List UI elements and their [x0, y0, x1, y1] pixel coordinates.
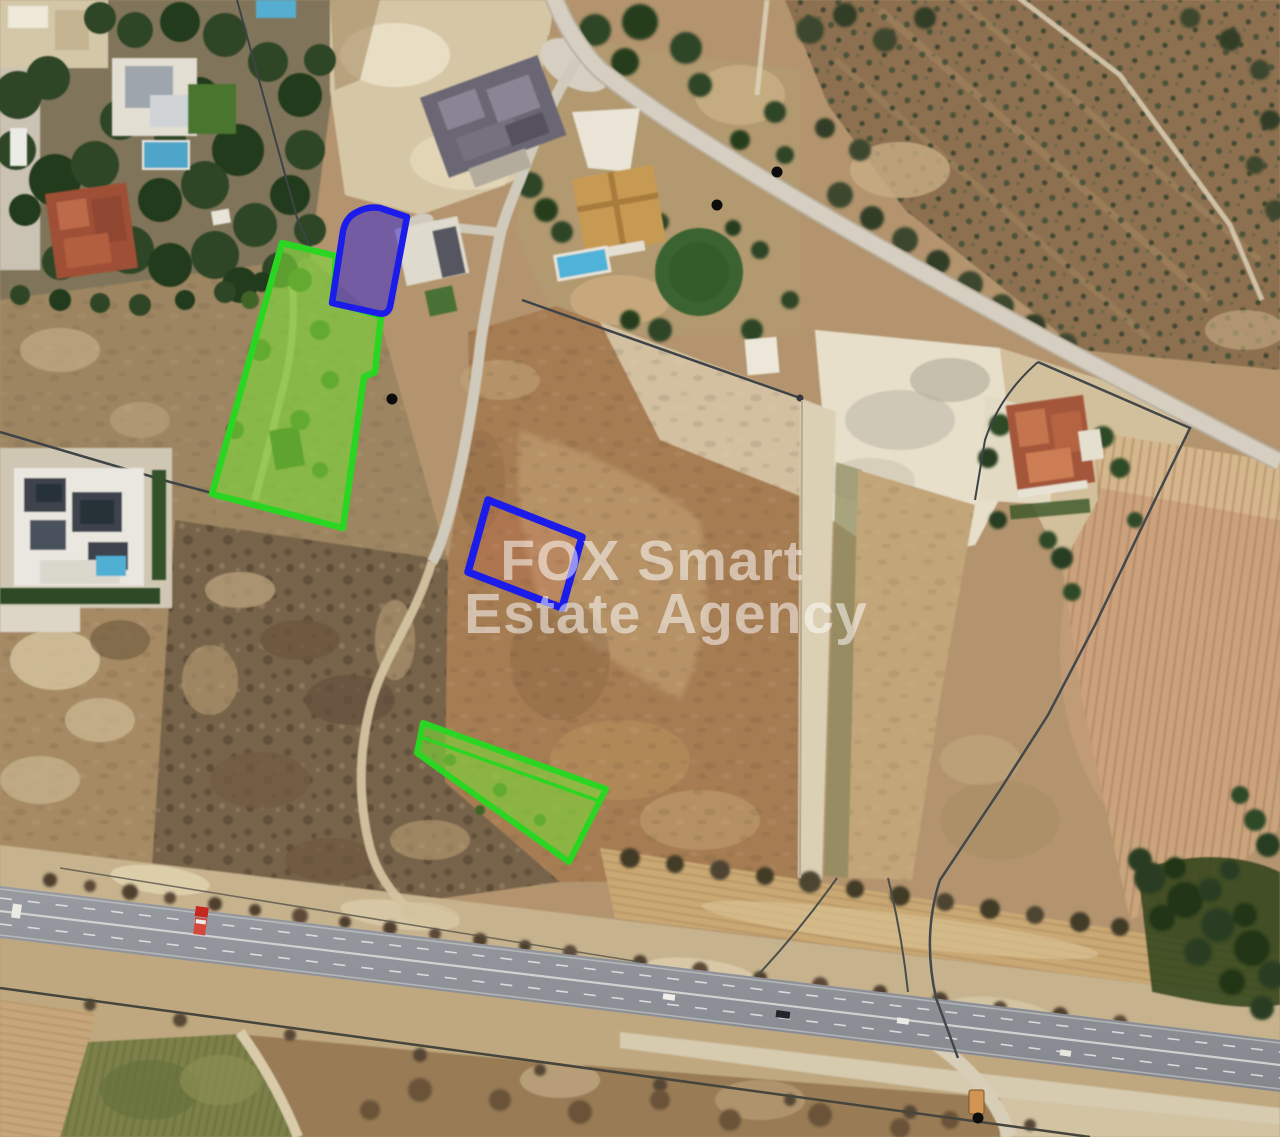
white-truck — [10, 128, 27, 166]
white-shed — [744, 337, 779, 376]
hedge-row — [0, 588, 160, 604]
satellite-map-svg: FOX Smart Estate Agency — [0, 0, 1280, 1137]
watermark-line-2: Estate Agency — [464, 582, 868, 646]
swimming-pool-1 — [143, 141, 189, 169]
black-dot-marker — [712, 200, 723, 211]
black-dot-marker — [387, 394, 398, 405]
satellite-map-image: FOX Smart Estate Agency — [0, 0, 1280, 1137]
swimming-pool-4 — [96, 556, 126, 576]
lawn-patch — [188, 84, 236, 134]
black-dot-marker — [973, 1113, 984, 1124]
swimming-pool-2 — [256, 0, 296, 18]
black-dot-marker — [772, 167, 783, 178]
building-terracotta-villa — [45, 183, 138, 280]
building-modern-house — [0, 468, 166, 604]
orange-marker — [969, 1090, 984, 1114]
